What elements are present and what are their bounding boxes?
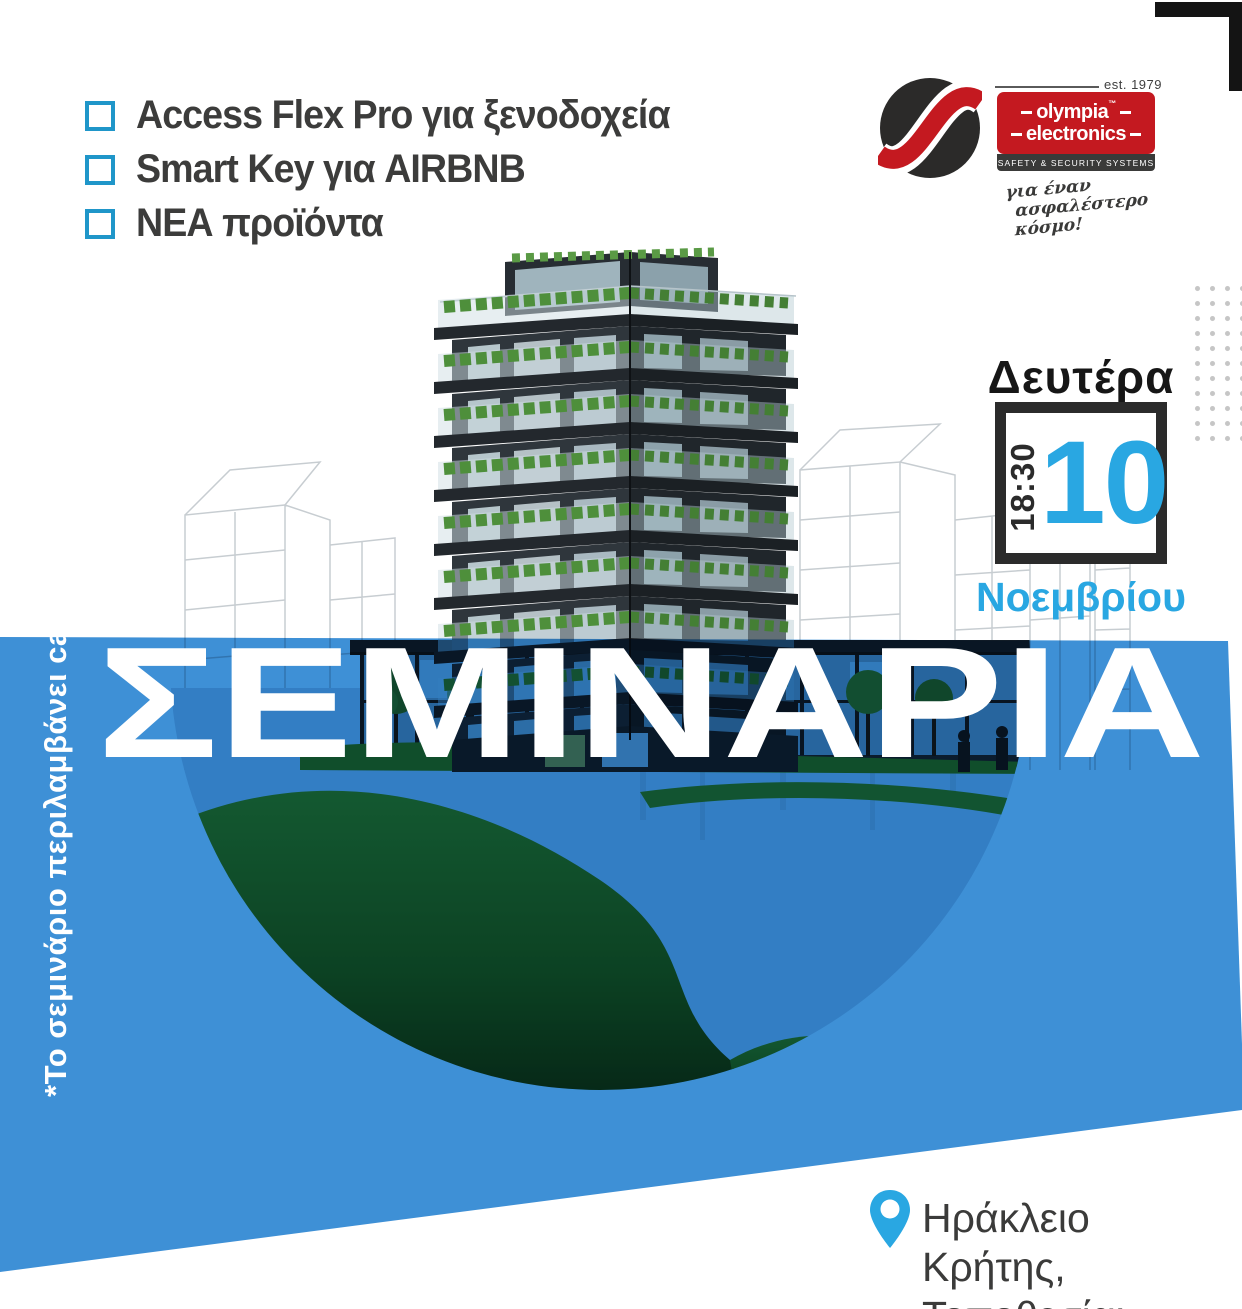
checkbox-icon: [85, 101, 115, 131]
brand-name-line2: electronics: [1007, 123, 1145, 145]
checklist-label: Smart Key για AIRBNB: [136, 147, 525, 192]
seminar-poster: ΣΕΜΙΝΑΡΙΑ *Το σεμινάριο περιλαμβάνει cat…: [0, 0, 1242, 1309]
brand-dash: [1011, 133, 1022, 136]
checklist-item: ΝΕΑ προϊόντα: [85, 202, 704, 245]
brand-dash: [1120, 111, 1131, 114]
est-year: est. 1979: [1104, 77, 1162, 92]
event-time: 18:30: [1004, 432, 1042, 542]
location-line2: Τοποθεσία: Σ.Η.Ε.Ν.Η.: [922, 1292, 1242, 1309]
brand-tagline: SAFETY & SECURITY SYSTEMS: [997, 154, 1155, 171]
trademark-symbol: ™: [1108, 93, 1116, 115]
checklist-label: ΝΕΑ προϊόντα: [136, 201, 383, 246]
event-month: Νοεμβρίου: [975, 574, 1187, 621]
checkbox-icon: [85, 155, 115, 185]
brand-dash: [1130, 133, 1141, 136]
checklist-item: Smart Key για AIRBNB: [85, 148, 704, 191]
brand-name-line1: olympia™: [1017, 101, 1135, 123]
location-line1: Ηράκλειο Κρήτης,: [922, 1194, 1242, 1292]
est-divider-line: [995, 86, 1099, 88]
brand-logo: olympia™ electronics: [997, 92, 1155, 154]
catering-footnote: *Το σεμινάριο περιλαμβάνει catering: [38, 645, 74, 1097]
location-pin-icon: [868, 1188, 912, 1250]
brand-swirl-icon: [878, 76, 982, 180]
brand-dash: [1021, 111, 1032, 114]
event-date-number: 10: [1040, 413, 1160, 553]
seminar-title: ΣΕΜΙΝΑΡΙΑ: [97, 615, 1205, 791]
corner-bracket-decoration: [1155, 2, 1242, 91]
location-text: Ηράκλειο Κρήτης, Τοποθεσία: Σ.Η.Ε.Ν.Η.: [922, 1194, 1242, 1309]
checklist-item: Access Flex Pro για ξενοδοχεία: [85, 94, 704, 137]
checkbox-icon: [85, 209, 115, 239]
checklist-label: Access Flex Pro για ξενοδοχεία: [136, 93, 670, 138]
dot-grid-decoration: [1190, 281, 1242, 444]
event-day: Δευτέρα: [975, 350, 1187, 404]
topics-checklist: Access Flex Pro για ξενοδοχεία Smart Key…: [85, 94, 704, 245]
